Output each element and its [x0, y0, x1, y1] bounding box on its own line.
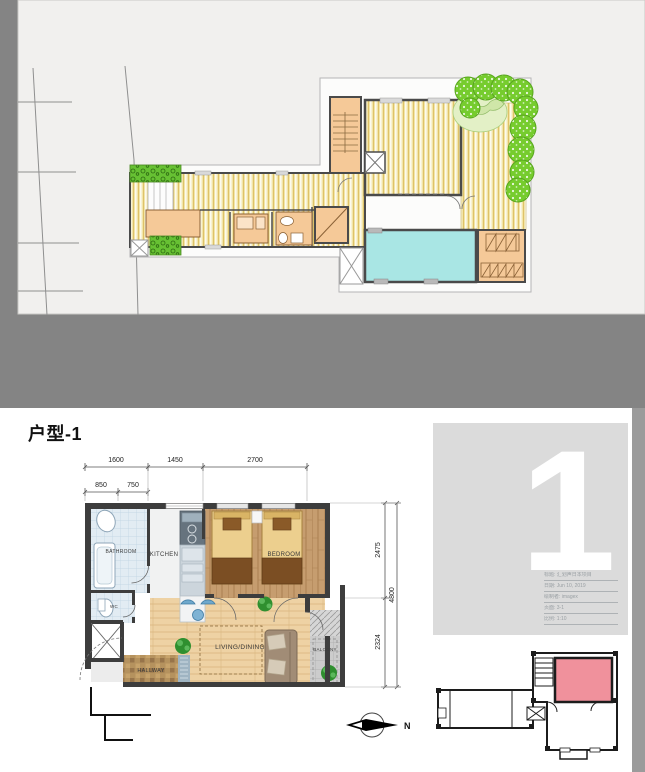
stair-room — [330, 97, 361, 173]
info-panel: 1 标题: 汇划声日本项目 日期: Jun 10, 2019 绘制者: imag… — [433, 423, 628, 635]
hallway-label: HALLWAY — [137, 668, 164, 674]
elevator-shaft — [91, 623, 123, 661]
title-block-row: 标题: 汇划声日本项目 — [544, 572, 618, 581]
key-plan-unit-1 — [555, 658, 612, 702]
pool — [365, 228, 476, 284]
dim-850: 850 — [95, 482, 107, 489]
site-plan-svg — [0, 0, 645, 408]
dim-2324: 2324 — [375, 634, 382, 650]
title-block-row: 页面: 3-1 — [544, 605, 618, 614]
living-dining-label: LIVING/DINING — [215, 644, 265, 651]
dim-1450: 1450 — [167, 457, 183, 464]
kitchen-label: KITCHEN — [150, 552, 178, 558]
wc-label: WC — [110, 604, 119, 609]
site-plan-section — [0, 0, 645, 408]
title-block-row: 比例: 1:10 — [544, 616, 618, 625]
north-arrow: N — [346, 713, 411, 737]
dim-750: 750 — [127, 482, 139, 489]
bedroom-label: BEDROOM — [267, 552, 300, 558]
north-label: N — [404, 721, 411, 731]
windows — [166, 504, 295, 509]
dim-1600: 1600 — [108, 457, 124, 464]
title-block-row: 日期: Jun 10, 2019 — [544, 583, 618, 592]
bathroom-label: BATHROOM — [106, 549, 137, 555]
title-block: 标题: 汇划声日本项目 日期: Jun 10, 2019 绘制者: imagex… — [544, 572, 618, 627]
page-title: 户型-1 — [28, 420, 82, 446]
right-gray-strip — [632, 408, 645, 772]
pool-deck — [478, 230, 525, 282]
balcony-label: BALCONY — [313, 647, 337, 652]
unit-plan-page: 1600 1450 2700 850 750 2475 2324 4800 — [0, 408, 645, 772]
entry-steps — [91, 687, 151, 740]
kitchen-unit — [180, 511, 205, 622]
title-block-row: 绘制者: imagex — [544, 594, 618, 603]
balcony-hatch-zone — [310, 610, 340, 636]
key-plan — [436, 651, 618, 759]
wing-stair-strip — [148, 182, 173, 210]
elevator-shaft-small — [365, 152, 385, 173]
dim-2700: 2700 — [247, 457, 263, 464]
screenshot-stage: 1600 1450 2700 850 750 2475 2324 4800 — [0, 0, 645, 772]
entry-floor — [91, 661, 123, 682]
sofa — [265, 630, 297, 684]
dim-4800: 4800 — [389, 587, 396, 603]
dim-2475: 2475 — [375, 542, 382, 558]
